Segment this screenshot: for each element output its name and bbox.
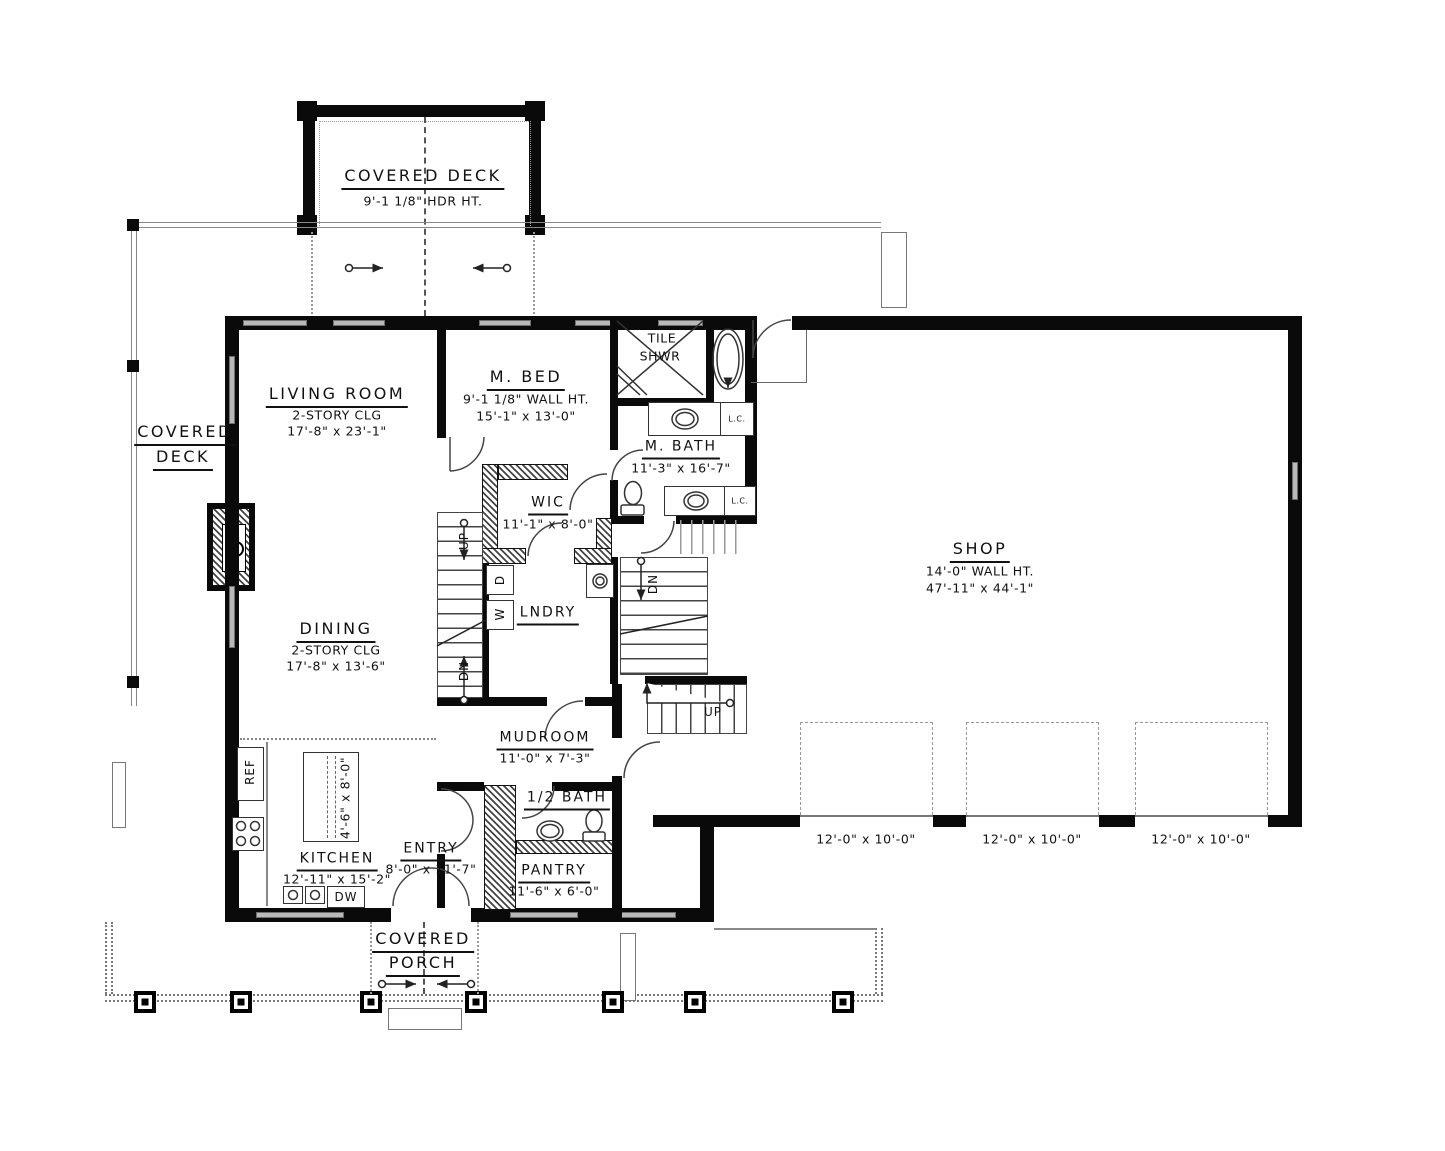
label-stairs-dn-hall: DN	[646, 574, 660, 594]
label-half-bath: 1/2 BATH	[524, 790, 610, 811]
label-covered-porch-2: PORCH	[386, 953, 460, 977]
label-kitchen: KITCHEN	[297, 851, 378, 872]
label-dining-note: 2-STORY CLG	[291, 643, 380, 658]
label-m-bed-note: 9'-1 1/8" WALL HT.	[463, 392, 589, 407]
toilets	[583, 482, 644, 842]
label-wic: WIC	[528, 495, 568, 516]
label-mudroom-dims: 11'-0" x 7'-3"	[500, 751, 591, 766]
symbol-overlay	[0, 0, 1445, 1151]
label-stairs-dn-main: DN	[457, 661, 471, 681]
stair-direction-arrows	[437, 520, 734, 707]
label-stairs-up-main: UP	[457, 532, 471, 550]
label-mudroom: MUDROOM	[497, 730, 594, 751]
label-m-bath: M. BATH	[642, 439, 720, 460]
label-refrigerator: REF	[243, 759, 257, 785]
label-wic-dims: 11'-1" x 8'-0"	[503, 517, 594, 532]
label-living-room-dims: 17'-8" x 23'-1"	[287, 424, 386, 439]
label-living-room-note: 2-STORY CLG	[292, 408, 381, 423]
label-stairs-up-shop: UP	[704, 705, 722, 719]
label-m-bed-dims: 15'-1" x 13'-0"	[476, 409, 575, 424]
label-linen-1: L.C.	[728, 415, 745, 424]
label-covered-porch-1: COVERED	[372, 929, 474, 953]
label-covered-deck-top: COVERED DECK	[341, 166, 504, 190]
bathtub	[713, 329, 743, 389]
label-m-bed: M. BED	[487, 367, 565, 391]
label-m-bath-dims: 11'-3" x 16'-7"	[631, 461, 730, 476]
label-garage-door-3: 12'-0" x 10'-0"	[1151, 832, 1250, 847]
range-burners	[237, 822, 260, 846]
label-dishwasher: DW	[334, 890, 357, 904]
label-pantry-dims: 11'-6" x 6'-0"	[509, 884, 600, 899]
label-kitchen-dims: 12'-11" x 15'-2"	[283, 872, 391, 887]
label-garage-door-2: 12'-0" x 10'-0"	[982, 832, 1081, 847]
label-covered-deck-top-note: 9'-1 1/8" HDR HT.	[363, 194, 482, 209]
label-dryer: D	[493, 575, 507, 585]
label-linen-2: L.C.	[731, 497, 748, 506]
label-shop-dims: 47'-11" x 44'-1"	[926, 581, 1034, 596]
label-covered-deck-left-2: DECK	[153, 447, 213, 471]
label-dining-dims: 17'-8" x 13'-6"	[286, 659, 385, 674]
label-garage-door-1: 12'-0" x 10'-0"	[816, 832, 915, 847]
label-entry: ENTRY	[400, 841, 461, 862]
label-washer: W	[493, 608, 507, 621]
label-tile-shower-2: SHWR	[640, 349, 681, 364]
label-entry-dims: 8'-0" x 11'-7"	[386, 862, 477, 877]
label-shop-note: 14'-0" WALL HT.	[926, 564, 1034, 579]
label-tile-shower-1: TILE	[648, 331, 677, 346]
label-shop: SHOP	[950, 539, 1010, 563]
label-island-dims: 4'-6" x 8'-0"	[338, 757, 353, 839]
label-pantry: PANTRY	[518, 863, 590, 884]
label-dining: DINING	[296, 619, 375, 643]
label-laundry: LNDRY	[517, 605, 579, 626]
label-living-room: LIVING ROOM	[266, 384, 408, 408]
label-covered-deck-left-1: COVERED	[134, 422, 236, 446]
floor-plan: COVERED DECK 9'-1 1/8" HDR HT. COVERED D…	[0, 0, 1445, 1151]
